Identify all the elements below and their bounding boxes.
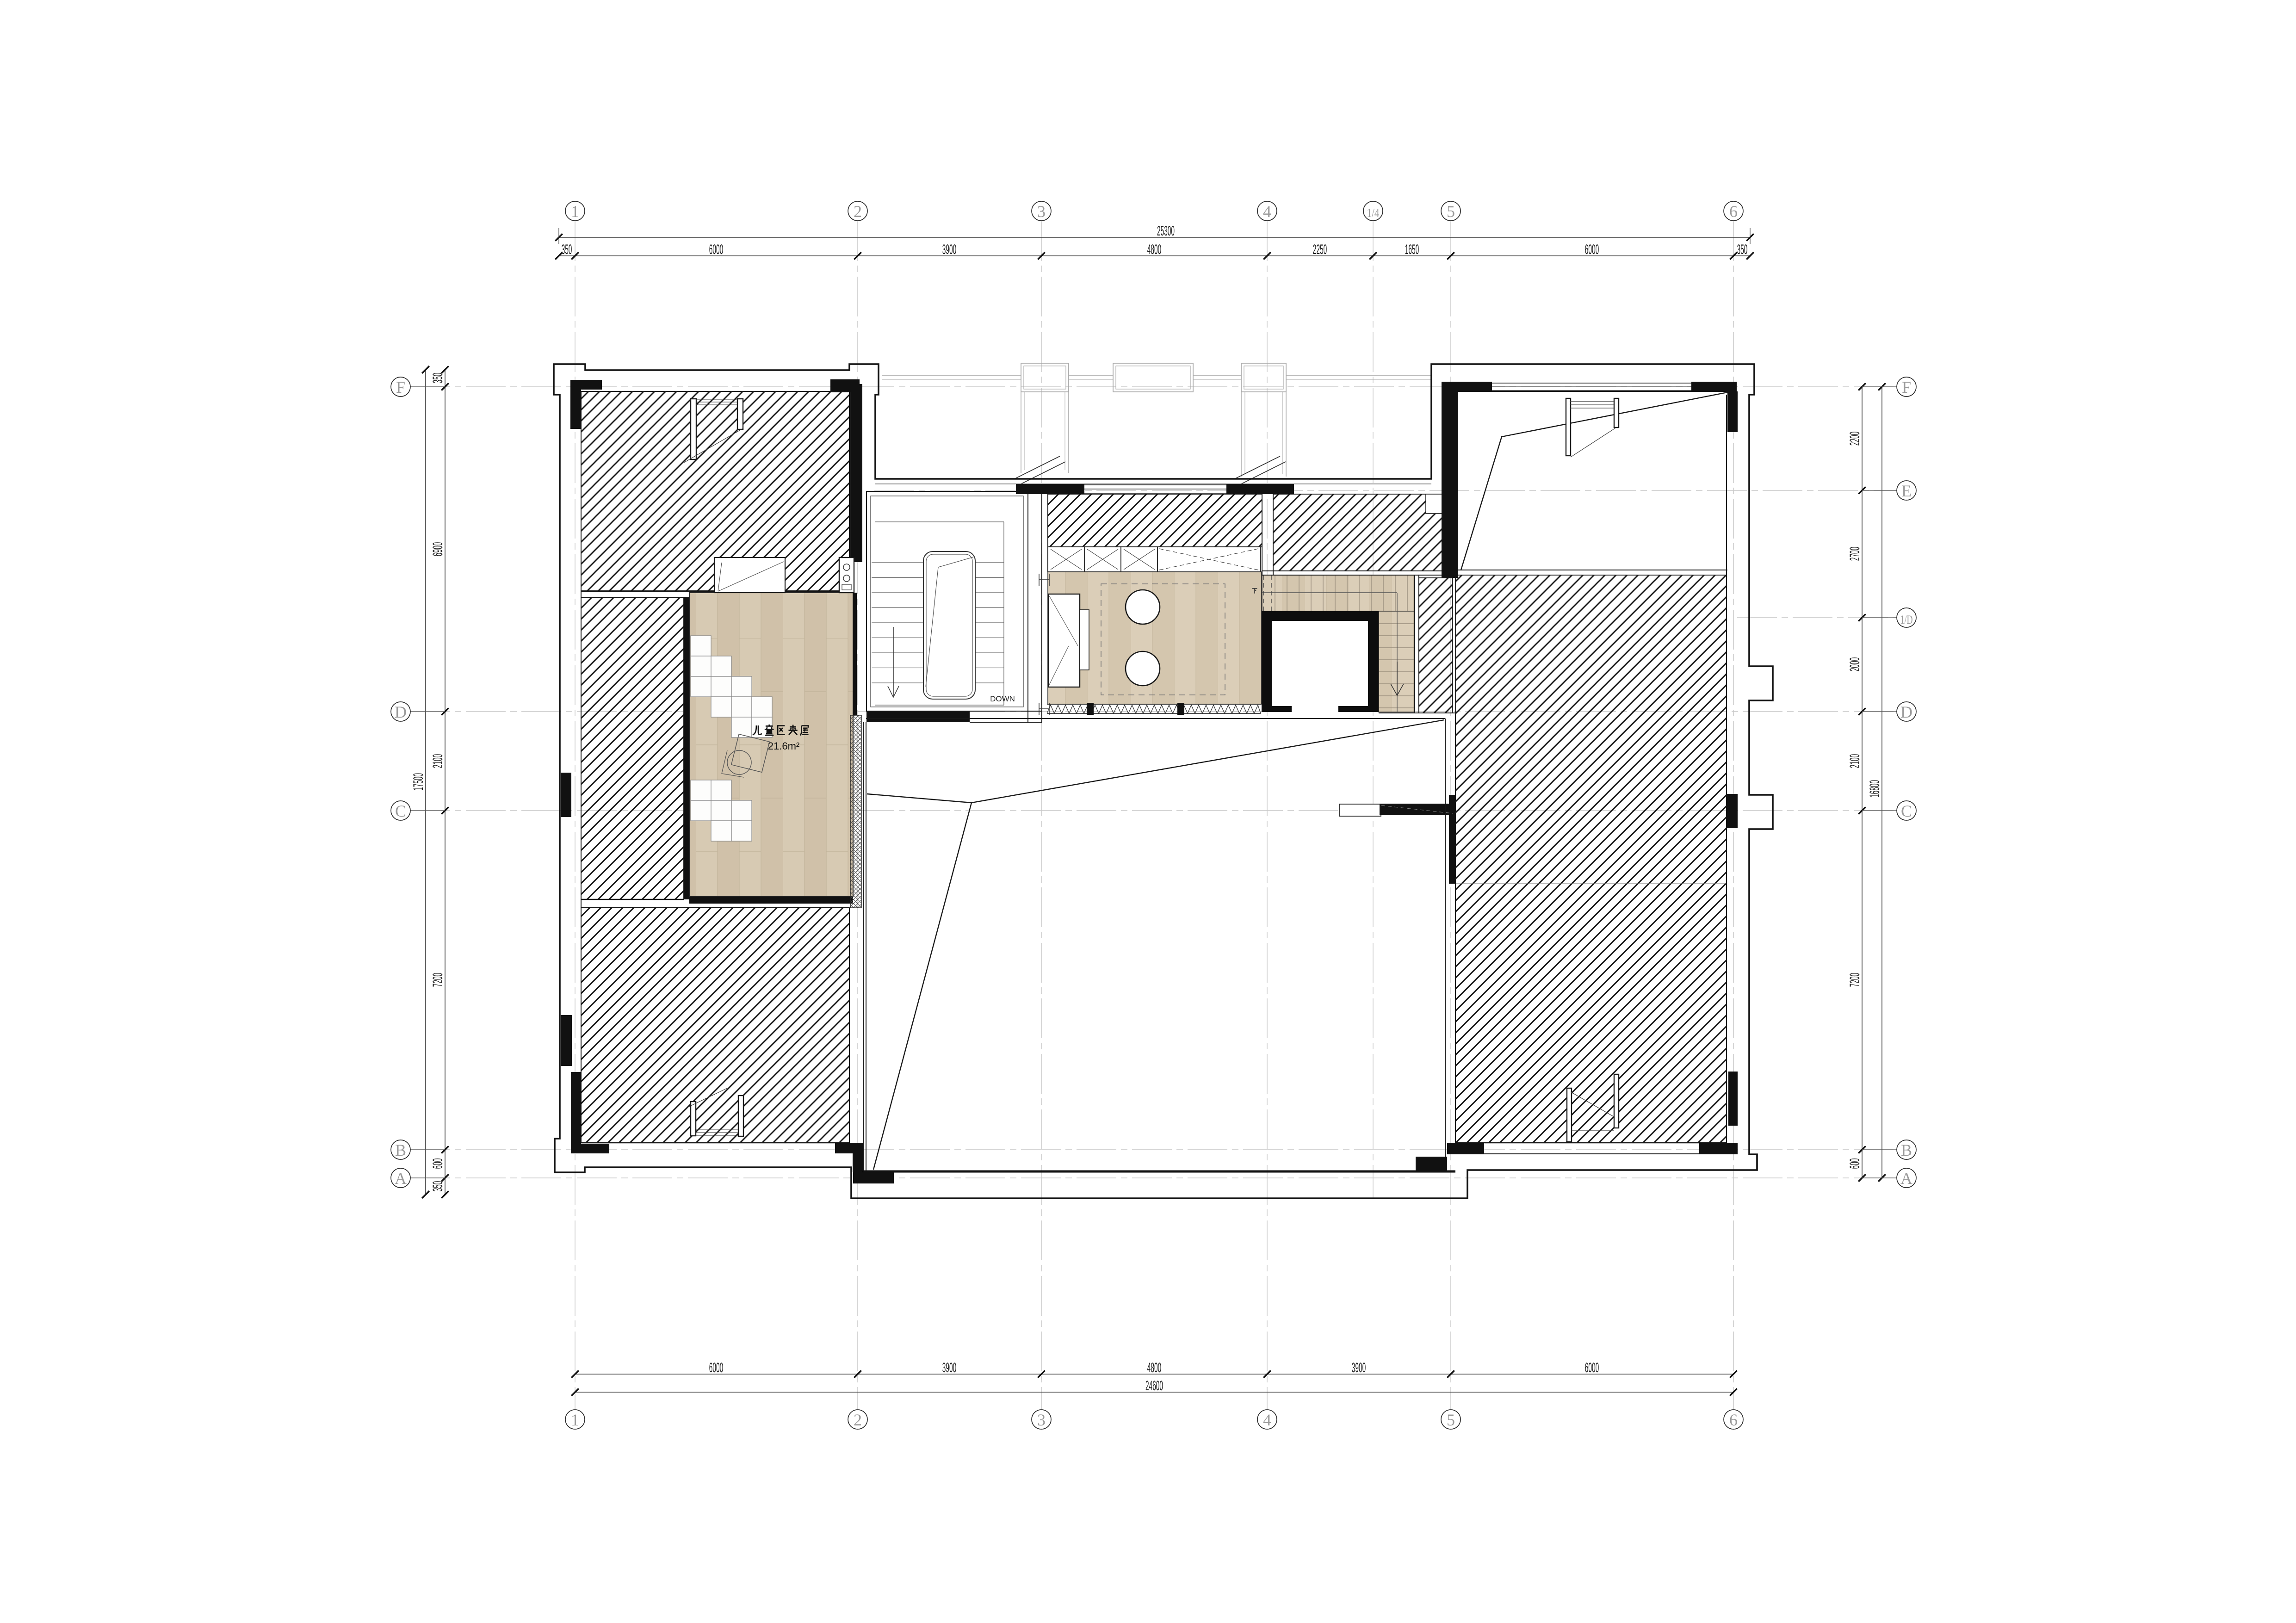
svg-text:3900: 3900 [942,1360,956,1375]
svg-text:B: B [395,1141,406,1159]
svg-text:4: 4 [1263,202,1271,221]
svg-text:600: 600 [1847,1158,1863,1169]
svg-text:6: 6 [1729,1411,1738,1429]
svg-text:6000: 6000 [1585,242,1599,257]
svg-text:350: 350 [562,242,572,257]
svg-text:16800: 16800 [1867,780,1882,798]
svg-text:4: 4 [1263,1411,1271,1429]
svg-text:6000: 6000 [709,1360,723,1375]
svg-text:350: 350 [430,1181,446,1192]
svg-text:D: D [395,703,407,721]
svg-text:1: 1 [571,202,579,221]
svg-text:2250: 2250 [1313,242,1327,257]
svg-text:3: 3 [1037,202,1046,221]
svg-text:1: 1 [571,1411,579,1429]
svg-text:350: 350 [1737,242,1748,257]
svg-text:24600: 24600 [1145,1378,1163,1394]
svg-text:5: 5 [1447,202,1455,221]
svg-text:1650: 1650 [1405,242,1419,257]
svg-text:3: 3 [1037,1411,1046,1429]
svg-text:A: A [1900,1169,1912,1188]
svg-text:F: F [396,378,405,396]
svg-text:C: C [395,802,406,820]
svg-text:D: D [1900,703,1912,721]
svg-text:4800: 4800 [1147,1360,1161,1375]
svg-text:3900: 3900 [942,242,956,257]
svg-text:25300: 25300 [1157,223,1175,239]
svg-text:3900: 3900 [1352,1360,1366,1375]
svg-text:2000: 2000 [1847,657,1863,671]
svg-text:21.6m²: 21.6m² [768,740,799,752]
svg-text:5: 5 [1447,1411,1455,1429]
svg-text:1/4: 1/4 [1367,206,1380,220]
svg-text:6000: 6000 [709,242,723,257]
svg-text:2: 2 [854,202,862,221]
svg-text:1/D: 1/D [1900,613,1913,626]
svg-text:7200: 7200 [430,973,446,987]
svg-text:6900: 6900 [430,542,446,556]
svg-text:2200: 2200 [1847,432,1863,446]
svg-text:6: 6 [1729,202,1738,221]
svg-text:600: 600 [430,1158,446,1169]
svg-text:7200: 7200 [1847,973,1863,987]
svg-text:350: 350 [430,373,446,384]
svg-text:A: A [395,1169,407,1188]
svg-text:2: 2 [854,1411,862,1429]
svg-text:E: E [1901,482,1912,500]
svg-text:17500: 17500 [411,773,426,791]
svg-text:DOWN: DOWN [990,694,1015,703]
svg-text:F: F [1902,378,1911,396]
svg-text:2700: 2700 [1847,547,1863,561]
svg-text:6000: 6000 [1585,1360,1599,1375]
svg-text:2100: 2100 [1847,754,1863,768]
svg-text:4800: 4800 [1147,242,1161,257]
svg-text:B: B [1901,1141,1912,1159]
svg-text:2100: 2100 [430,754,446,768]
svg-text:C: C [1901,802,1912,820]
